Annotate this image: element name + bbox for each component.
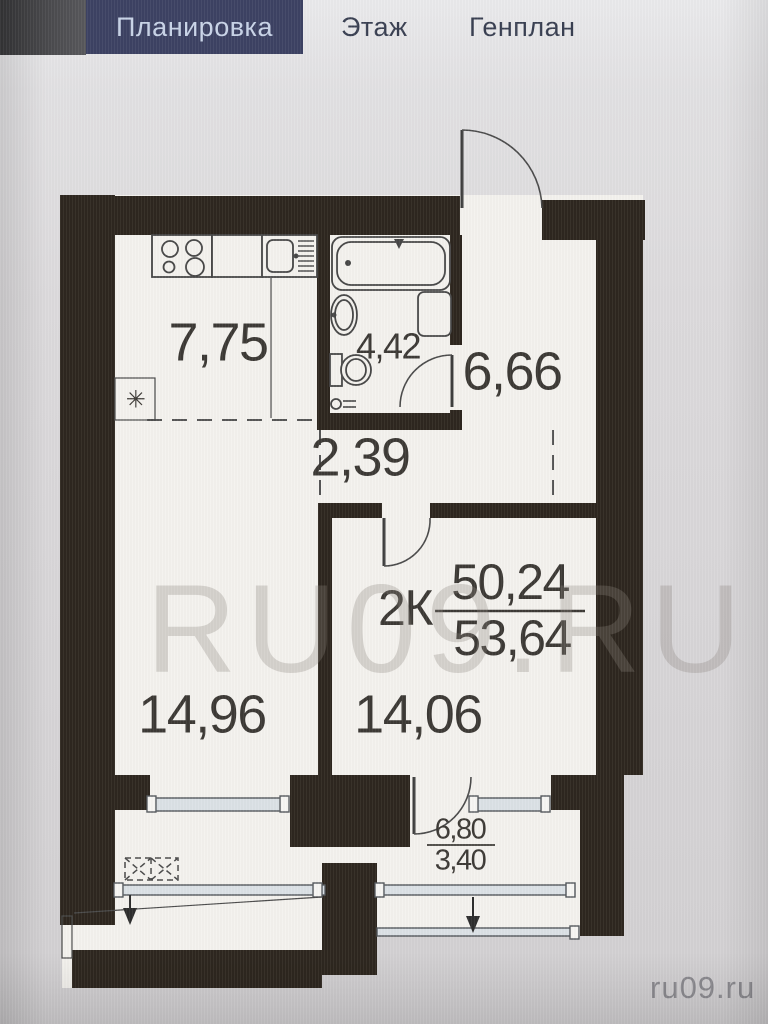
tab-genplan[interactable]: Генплан [469, 0, 576, 54]
loggia-area-reduced: 3,40 [435, 845, 486, 877]
area-bathroom: 4,42 [356, 326, 421, 367]
window-living-room [147, 796, 289, 812]
area-hallway: 6,66 [462, 341, 561, 401]
area-kitchen: 7,75 [168, 312, 267, 372]
bathtub-icon [332, 237, 450, 290]
bath-sink-icon [331, 295, 357, 335]
screen: Планировка Этаж Генплан [0, 0, 768, 1024]
stove-icon [152, 235, 212, 277]
tab-planirovka[interactable]: Планировка [86, 0, 303, 54]
photo-dark-corner [0, 0, 86, 55]
loggia-area-full: 6,80 [435, 814, 486, 846]
window-bedroom [469, 796, 550, 812]
shaft-mark: ✳ [126, 386, 145, 413]
site-watermark: ru09.ru [650, 970, 755, 1006]
floor-plan: ✳ [58, 118, 670, 1013]
washer-icon [418, 292, 451, 336]
loggia-area-label: 6,80 3,40 [427, 814, 495, 877]
kitchen-sink-icon [262, 235, 317, 277]
counter-icon [212, 235, 262, 277]
area-corridor: 2,39 [310, 427, 409, 487]
watermark: RU09.RU [146, 558, 751, 701]
tab-etazh[interactable]: Этаж [341, 0, 408, 54]
